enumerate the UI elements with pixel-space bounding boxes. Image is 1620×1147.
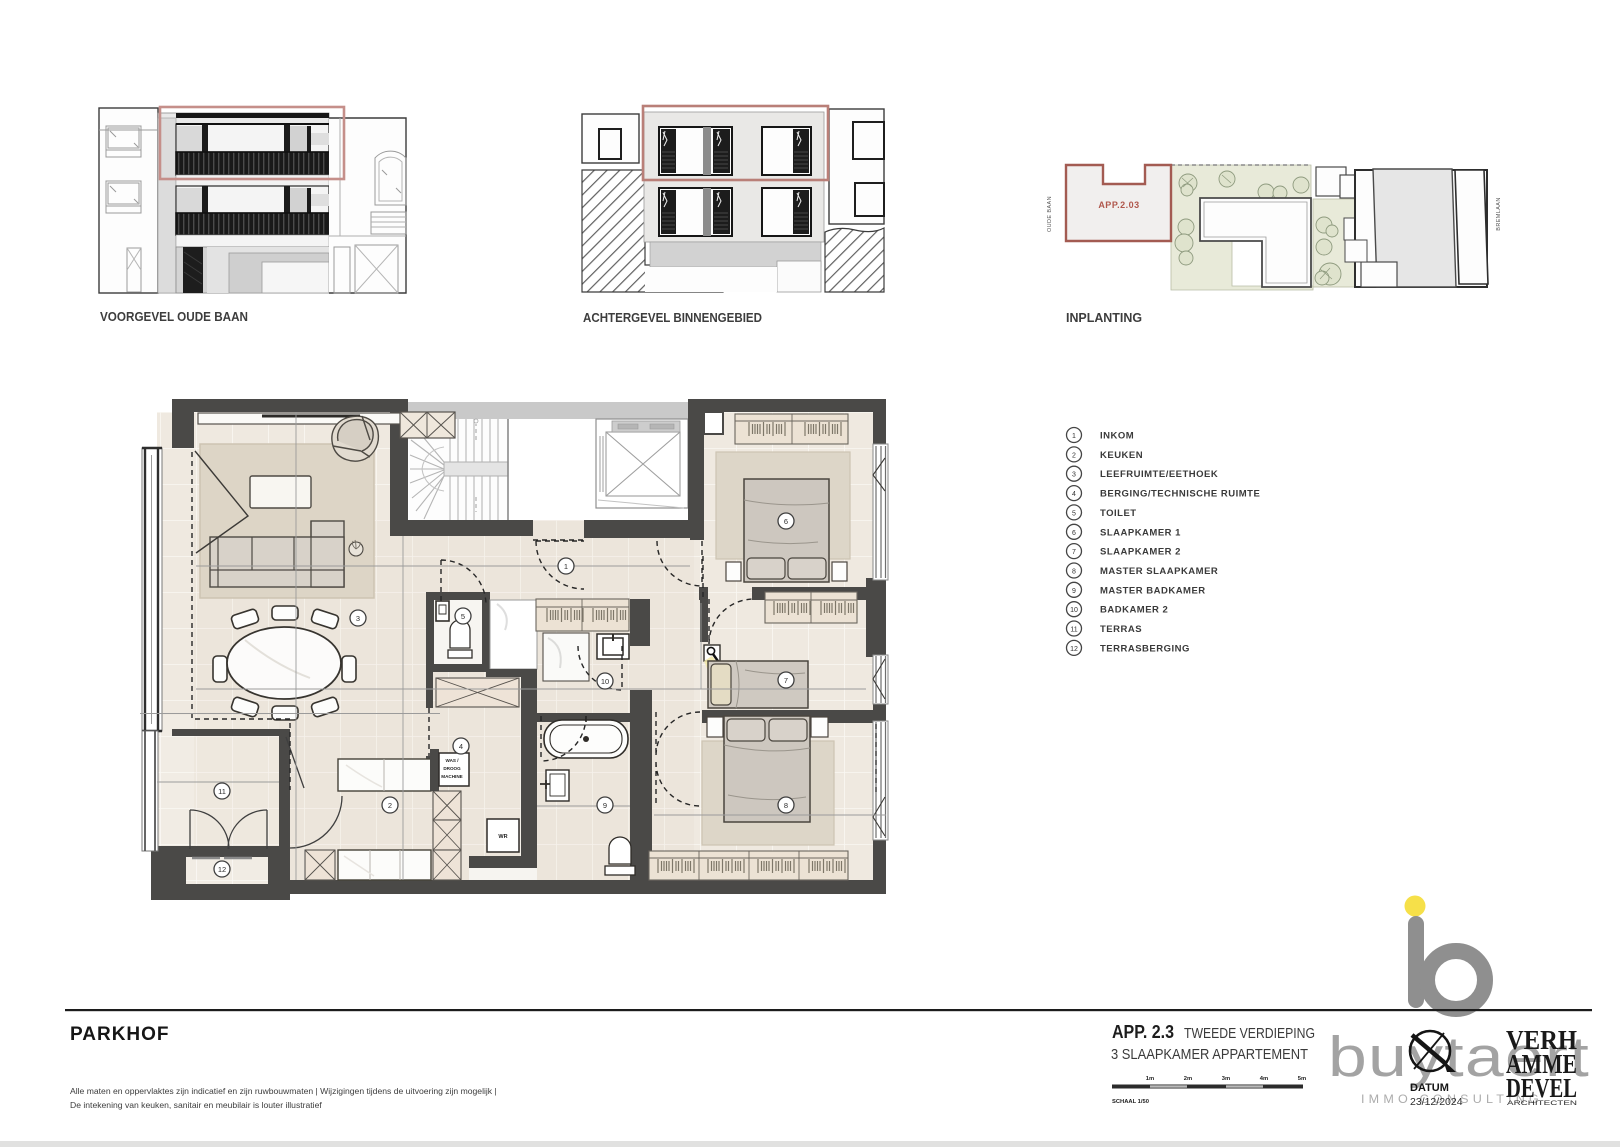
svg-text:1: 1: [1072, 433, 1076, 440]
svg-text:TOILET: TOILET: [1100, 508, 1137, 519]
svg-text:DROOG: DROOG: [443, 766, 461, 771]
svg-text:6: 6: [1072, 530, 1076, 537]
svg-text:10: 10: [1070, 607, 1078, 614]
svg-text:TERRASBERGING: TERRASBERGING: [1100, 643, 1190, 654]
svg-text:INKOM: INKOM: [1100, 431, 1134, 442]
svg-text:LEEFRUIMTE/EETHOEK: LEEFRUIMTE/EETHOEK: [1100, 469, 1218, 480]
svg-text:12: 12: [218, 865, 226, 874]
svg-text:BERGING/TECHNISCHE RUIMTE: BERGING/TECHNISCHE RUIMTE: [1100, 489, 1260, 500]
svg-text:6: 6: [784, 517, 788, 526]
svg-text:5: 5: [461, 612, 465, 621]
svg-text:WR: WR: [498, 834, 507, 840]
svg-text:SCHAAL 1/50: SCHAAL 1/50: [1112, 1099, 1149, 1105]
svg-text:TERRAS: TERRAS: [1100, 624, 1142, 635]
svg-text:3: 3: [1072, 472, 1076, 479]
svg-text:ACHTERGEVEL BINNENGEBIED: ACHTERGEVEL BINNENGEBIED: [583, 310, 762, 325]
svg-text:WAS /: WAS /: [445, 758, 459, 763]
svg-text:INPLANTING: INPLANTING: [1066, 310, 1142, 325]
svg-text:MASTER SLAAPKAMER: MASTER SLAAPKAMER: [1100, 566, 1218, 577]
svg-text:DEVEL: DEVEL: [1506, 1073, 1577, 1103]
svg-text:2m: 2m: [1184, 1076, 1192, 1082]
svg-text:1: 1: [564, 562, 568, 571]
svg-text:4: 4: [1072, 491, 1076, 498]
svg-text:9: 9: [603, 801, 607, 810]
svg-text:5m: 5m: [1298, 1076, 1306, 1082]
svg-text:KEUKEN: KEUKEN: [1100, 450, 1143, 461]
svg-text:23/12/2024: 23/12/2024: [1410, 1096, 1463, 1108]
svg-text:DATUM: DATUM: [1410, 1082, 1449, 1094]
svg-text:12: 12: [1070, 646, 1078, 653]
svg-text:2: 2: [1072, 452, 1076, 459]
svg-text:5: 5: [1072, 510, 1076, 517]
svg-text:2: 2: [388, 801, 392, 810]
svg-text:BADKAMER 2: BADKAMER 2: [1100, 605, 1168, 616]
svg-text:11: 11: [218, 787, 226, 796]
svg-text:1m: 1m: [1146, 1076, 1154, 1082]
svg-text:Alle maten en oppervlaktes zij: Alle maten en oppervlaktes zijn indicati…: [70, 1086, 497, 1096]
svg-text:7: 7: [1072, 549, 1076, 556]
svg-text:3m: 3m: [1222, 1076, 1230, 1082]
svg-text:BREMLAAN: BREMLAAN: [1496, 197, 1502, 230]
svg-text:MACHINE: MACHINE: [441, 774, 462, 779]
svg-text:3: 3: [356, 614, 360, 623]
svg-text:APP. 2.3: APP. 2.3: [1112, 1022, 1174, 1042]
svg-text:8: 8: [1072, 569, 1076, 576]
svg-text:9: 9: [1072, 588, 1076, 595]
svg-text:ARCHITECTEN: ARCHITECTEN: [1507, 1100, 1577, 1107]
svg-text:OUDE BAAN: OUDE BAAN: [1047, 196, 1053, 232]
svg-text:TWEEDE VERDIEPING: TWEEDE VERDIEPING: [1184, 1025, 1315, 1042]
svg-text:10: 10: [601, 677, 609, 686]
svg-text:4: 4: [459, 742, 463, 751]
svg-text:11: 11: [1070, 627, 1077, 634]
svg-text:MASTER BADKAMER: MASTER BADKAMER: [1100, 585, 1206, 596]
svg-text:7: 7: [784, 676, 788, 685]
svg-text:PARKHOF: PARKHOF: [70, 1024, 170, 1045]
svg-text:VOORGEVEL OUDE BAAN: VOORGEVEL OUDE BAAN: [100, 309, 248, 324]
svg-text:4m: 4m: [1260, 1076, 1268, 1082]
svg-text:SLAAPKAMER 2: SLAAPKAMER 2: [1100, 547, 1181, 558]
svg-text:SLAAPKAMER 1: SLAAPKAMER 1: [1100, 527, 1181, 538]
svg-text:APP.2.03: APP.2.03: [1098, 200, 1139, 210]
svg-text:3 SLAAPKAMER APPARTEMENT: 3 SLAAPKAMER APPARTEMENT: [1111, 1046, 1308, 1063]
svg-text:De intekening van keuken, sani: De intekening van keuken, sanitair en me…: [70, 1100, 322, 1110]
svg-text:8: 8: [784, 801, 788, 810]
